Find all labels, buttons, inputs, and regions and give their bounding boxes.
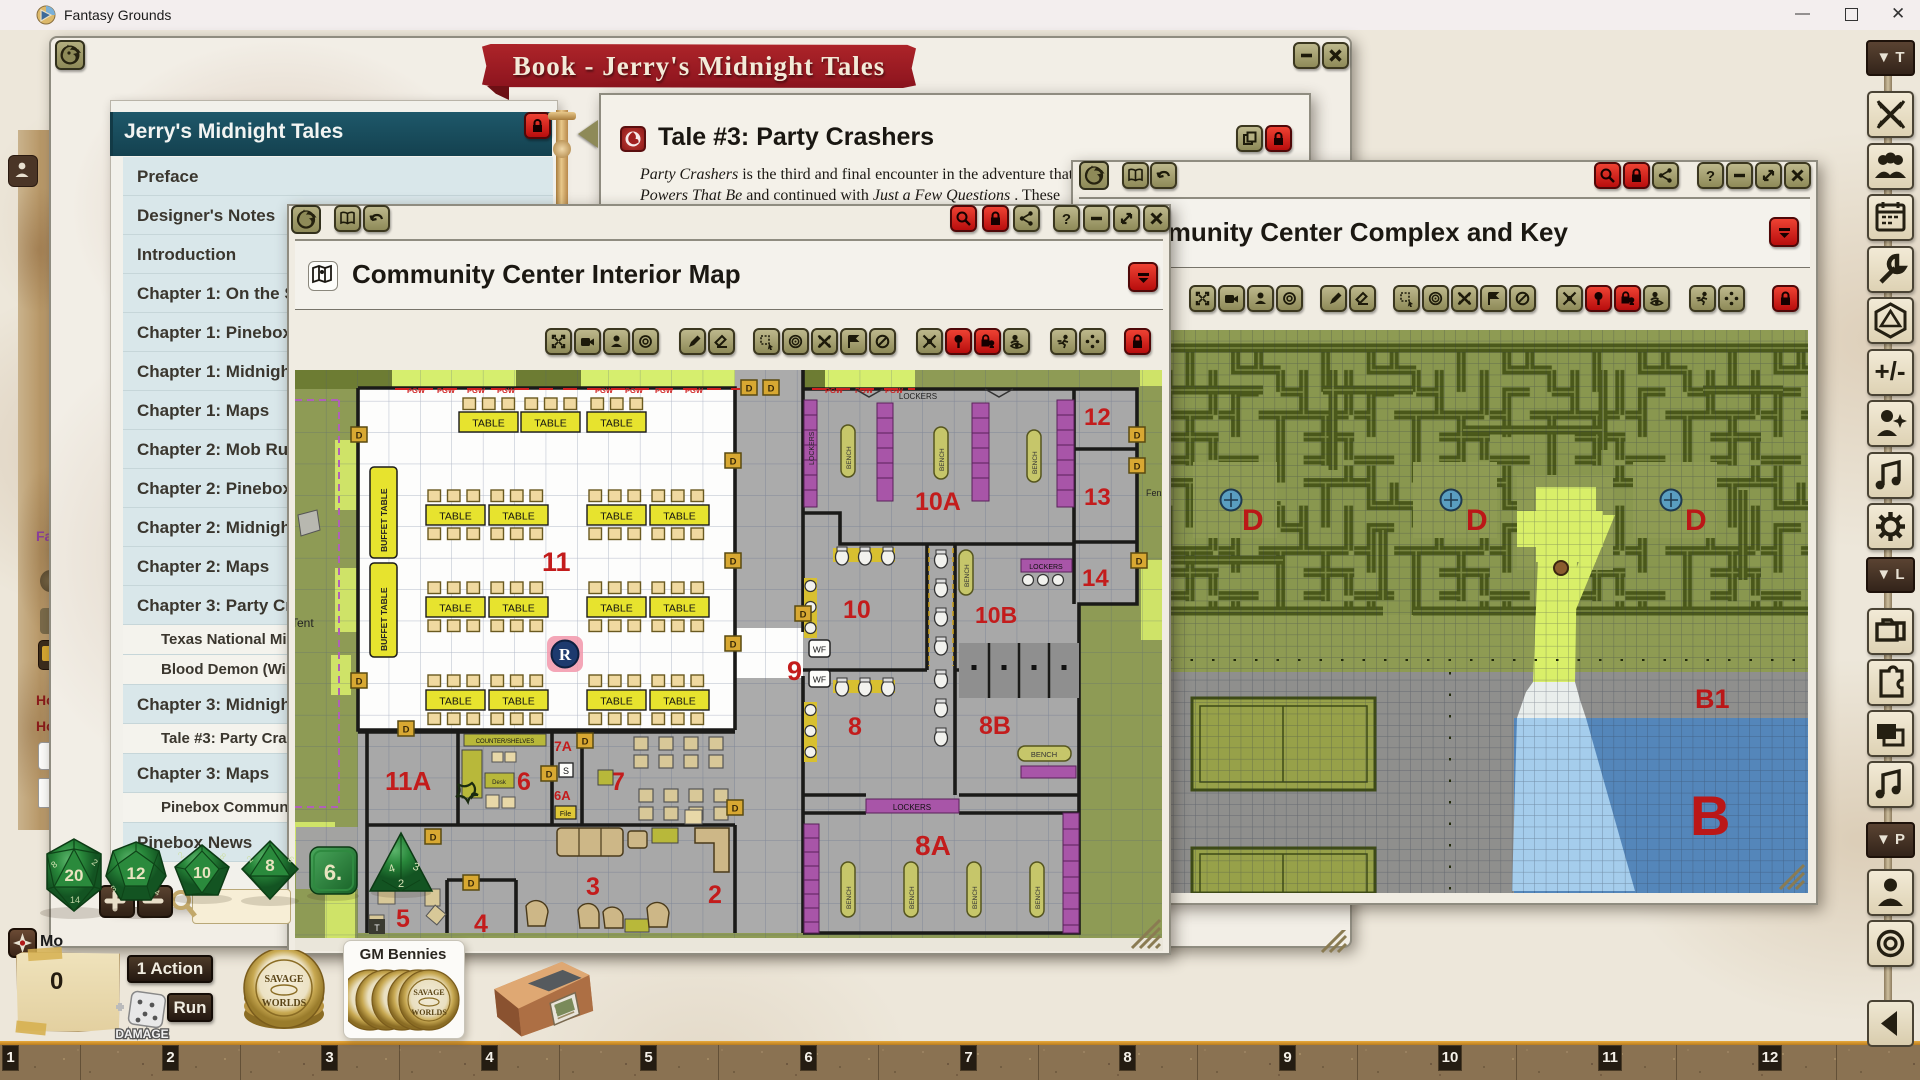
svg-text:LOCKERS: LOCKERS	[899, 392, 937, 401]
svg-text:20: 20	[65, 866, 84, 885]
svg-text:?: ?	[1706, 168, 1715, 184]
svg-text:TABLE: TABLE	[600, 696, 632, 708]
svg-text:D: D	[800, 610, 807, 621]
svg-text:BUFFET TABLE: BUFFET TABLE	[379, 488, 389, 552]
svg-text:LOCKERS: LOCKERS	[809, 431, 816, 465]
svg-text:D: D	[403, 725, 410, 736]
svg-text:BENCH: BENCH	[1035, 886, 1042, 909]
svg-text:BENCH: BENCH	[1031, 750, 1057, 759]
svg-text:TABLE: TABLE	[600, 511, 632, 523]
svg-text:LOCKERS: LOCKERS	[893, 803, 931, 812]
svg-text:D: D	[1136, 557, 1143, 568]
svg-text:WF: WF	[813, 645, 826, 655]
svg-text:9: 9	[787, 656, 802, 686]
svg-text:D: D	[468, 879, 475, 890]
svg-text:12: 12	[1084, 404, 1111, 431]
svg-text:BUFFET TABLE: BUFFET TABLE	[379, 587, 389, 651]
svg-text:13: 13	[1084, 484, 1111, 511]
svg-text:D: D	[1134, 462, 1141, 473]
svg-text:TABLE: TABLE	[663, 511, 695, 523]
svg-text:8A: 8A	[915, 830, 951, 861]
svg-text:B: B	[1690, 784, 1730, 847]
svg-text:TABLE: TABLE	[439, 511, 471, 523]
svg-text:PGW: PGW	[437, 386, 456, 395]
svg-text:D: D	[1134, 431, 1141, 442]
svg-text:D: D	[768, 384, 775, 395]
svg-text:?: ?	[1062, 211, 1071, 227]
svg-text:TABLE: TABLE	[472, 418, 504, 430]
svg-text:10: 10	[843, 596, 871, 624]
svg-text:11A: 11A	[385, 766, 431, 796]
svg-text:PGW: PGW	[407, 386, 426, 395]
svg-text:TABLE: TABLE	[534, 418, 566, 430]
svg-text:12: 12	[127, 864, 146, 883]
svg-text:TABLE: TABLE	[502, 511, 534, 523]
svg-text:BENCH: BENCH	[939, 448, 946, 471]
svg-text:3: 3	[586, 873, 600, 901]
svg-text:D: D	[546, 770, 553, 781]
svg-text:6.: 6.	[324, 860, 342, 885]
svg-text:PGW: PGW	[497, 386, 516, 395]
svg-text:8: 8	[848, 713, 862, 741]
svg-text:D: D	[746, 384, 753, 395]
svg-text:PGW: PGW	[825, 386, 844, 395]
svg-text:+/-: +/-	[1874, 356, 1905, 386]
svg-text:PGW: PGW	[625, 386, 644, 395]
svg-text:BENCH: BENCH	[846, 886, 853, 909]
svg-text:TABLE: TABLE	[600, 603, 632, 615]
svg-text:File: File	[560, 811, 571, 818]
svg-text:TABLE: TABLE	[600, 418, 632, 430]
svg-text:S: S	[563, 766, 569, 776]
svg-text:D: D	[1466, 504, 1488, 537]
svg-text:R: R	[559, 645, 572, 664]
svg-text:WF: WF	[813, 675, 826, 685]
svg-text:14: 14	[70, 895, 80, 905]
svg-text:SAVAGE: SAVAGE	[264, 974, 303, 985]
svg-text:10A: 10A	[915, 488, 961, 516]
svg-text:D: D	[1685, 504, 1707, 537]
svg-text:TABLE: TABLE	[502, 696, 534, 708]
svg-text:PGW: PGW	[685, 386, 704, 395]
svg-text:LOCKERS: LOCKERS	[1029, 564, 1063, 571]
svg-text:D: D	[730, 557, 737, 568]
svg-text:D: D	[356, 677, 363, 688]
svg-text:COUNTER/SHELVES: COUNTER/SHELVES	[476, 739, 535, 745]
svg-text:11: 11	[542, 547, 571, 577]
svg-text:Tent: Tent	[295, 616, 314, 630]
svg-text:T: T	[374, 923, 380, 933]
svg-text:DAMAGE: DAMAGE	[115, 1027, 168, 1041]
svg-text:8: 8	[265, 856, 274, 875]
svg-text:D: D	[1242, 504, 1264, 537]
svg-text:B1: B1	[1695, 684, 1730, 714]
svg-text:Fen: Fen	[1146, 488, 1162, 498]
svg-text:TABLE: TABLE	[663, 603, 695, 615]
svg-text:10: 10	[193, 865, 211, 882]
svg-text:2: 2	[708, 881, 722, 909]
svg-text:PGW: PGW	[595, 386, 614, 395]
svg-text:6: 6	[517, 768, 531, 796]
svg-text:D: D	[732, 804, 739, 815]
svg-text:TABLE: TABLE	[439, 696, 471, 708]
svg-text:WORLDS: WORLDS	[411, 1008, 447, 1017]
svg-text:PGW: PGW	[467, 386, 486, 395]
svg-text:BENCH: BENCH	[846, 446, 853, 469]
svg-text:TABLE: TABLE	[663, 696, 695, 708]
svg-text:BENCH: BENCH	[909, 886, 916, 909]
svg-text:D: D	[582, 737, 589, 748]
svg-text:BENCH: BENCH	[972, 886, 979, 909]
svg-text:WORLDS: WORLDS	[262, 998, 307, 1009]
svg-text:TABLE: TABLE	[439, 603, 471, 615]
svg-text:6A: 6A	[554, 788, 571, 803]
svg-text:4: 4	[474, 910, 488, 938]
svg-text:14: 14	[1082, 565, 1109, 592]
svg-text:PGW: PGW	[655, 386, 674, 395]
svg-text:Desk: Desk	[492, 780, 507, 786]
svg-text:10B: 10B	[975, 602, 1017, 628]
svg-text:BENCH: BENCH	[1032, 451, 1039, 474]
svg-text:TABLE: TABLE	[502, 603, 534, 615]
svg-text:7A: 7A	[554, 738, 572, 754]
svg-text:D: D	[730, 457, 737, 468]
svg-text:D: D	[730, 640, 737, 651]
svg-text:2: 2	[398, 878, 404, 890]
svg-text:BENCH: BENCH	[964, 564, 971, 587]
svg-text:8B: 8B	[979, 712, 1011, 740]
svg-text:D: D	[356, 431, 363, 442]
svg-text:SAVAGE: SAVAGE	[413, 988, 444, 997]
